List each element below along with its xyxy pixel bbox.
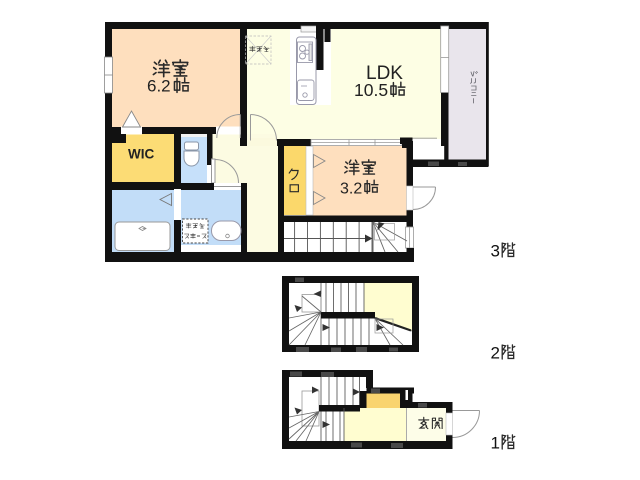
svg-text:10.5: 10.5 [354,80,388,100]
svg-text:2: 2 [491,344,500,363]
svg-text:3.2: 3.2 [340,181,362,198]
svg-text:WIC: WIC [128,147,154,162]
svg-text:6.2: 6.2 [147,77,171,96]
svg-text:1: 1 [491,434,500,453]
svg-text:3: 3 [491,242,500,261]
